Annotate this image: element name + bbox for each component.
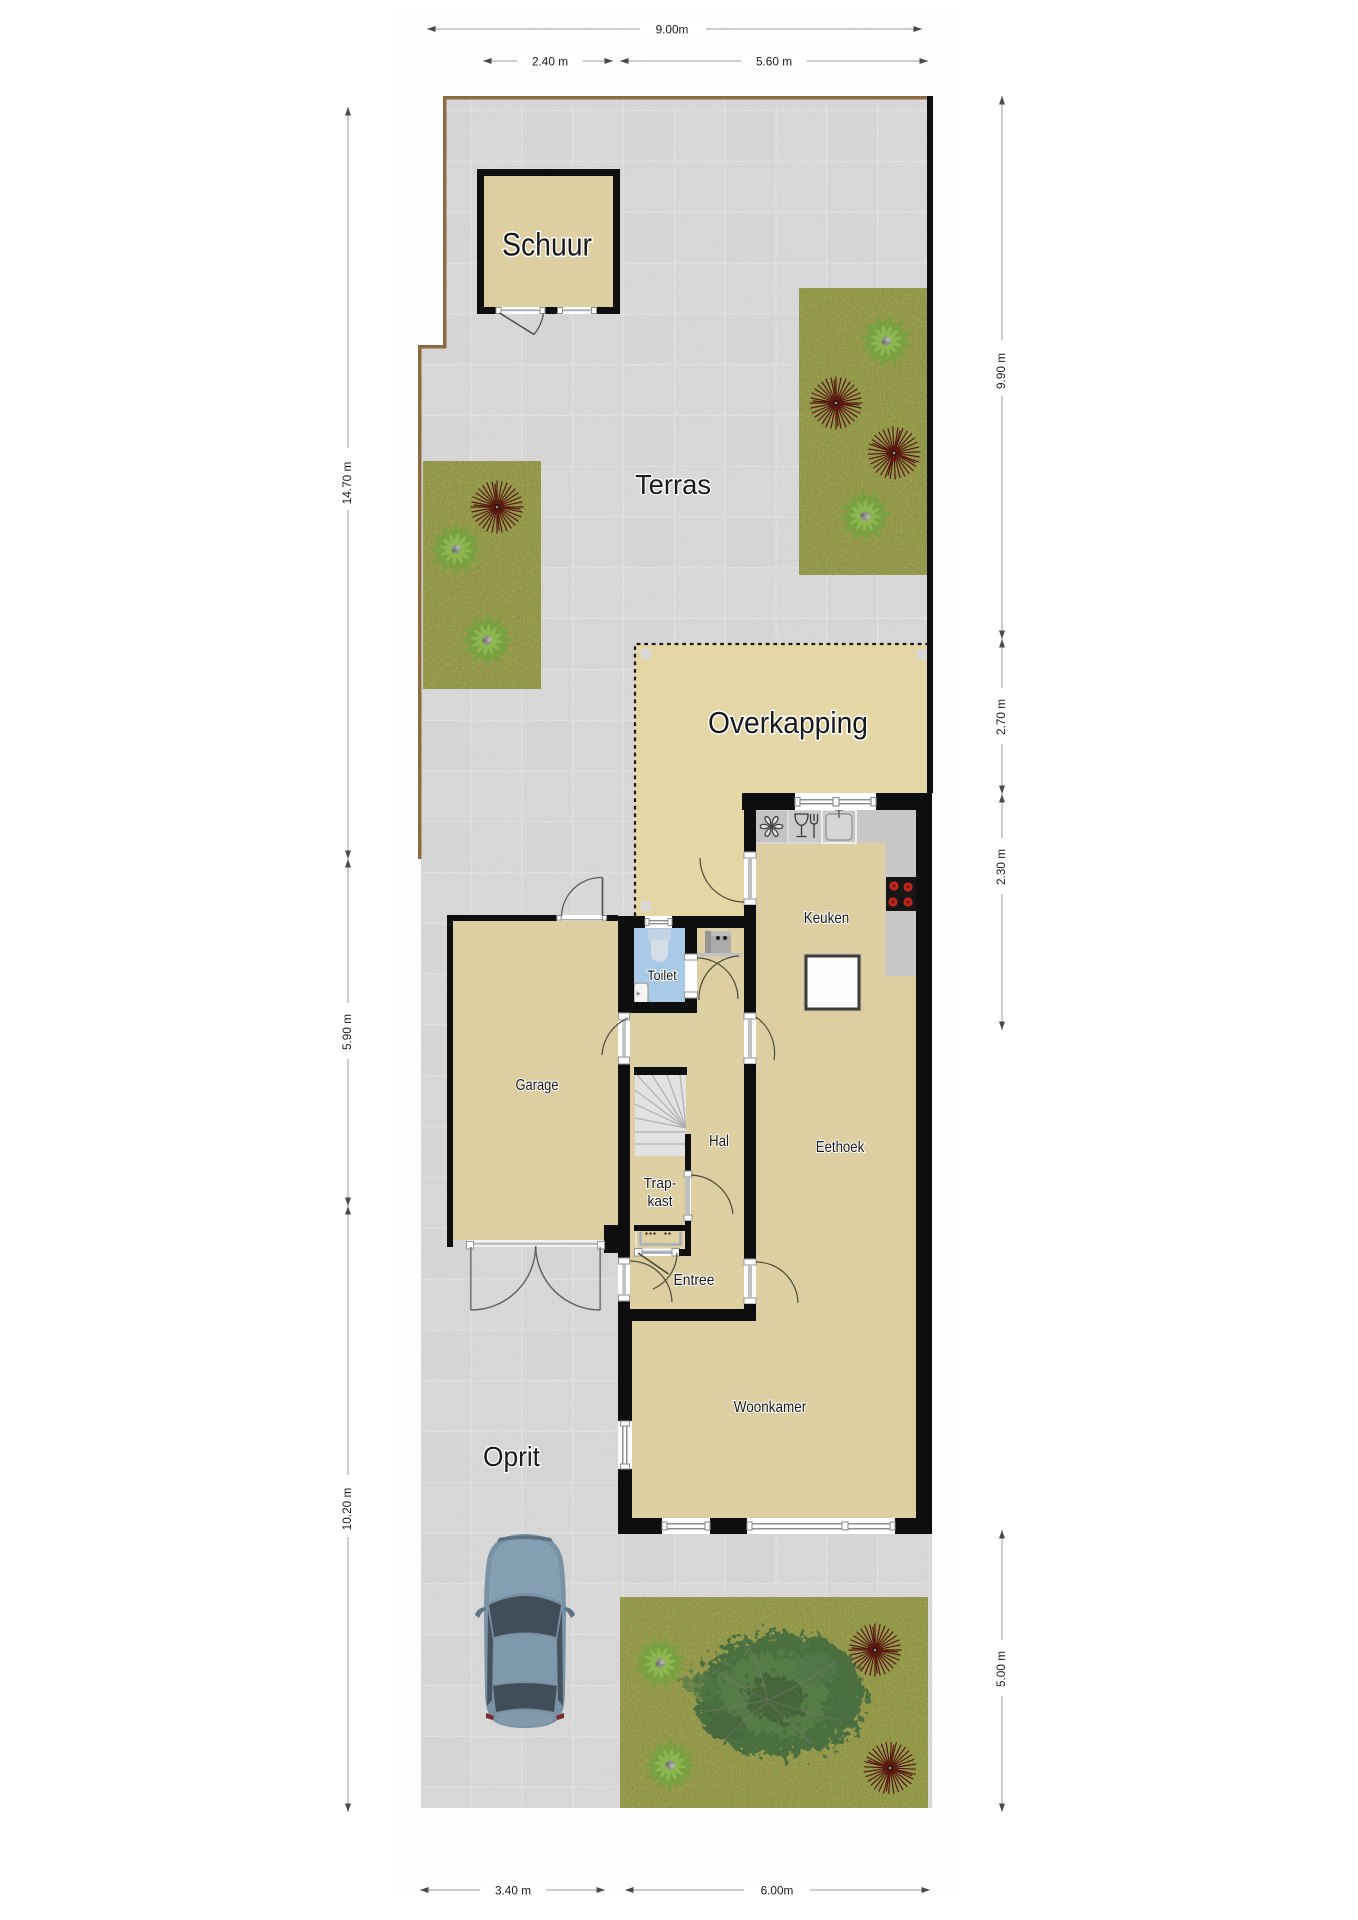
svg-text:5.90 m: 5.90 m — [340, 1014, 354, 1050]
svg-text:9.00m: 9.00m — [656, 23, 689, 37]
svg-text:Eethoek: Eethoek — [816, 1139, 865, 1156]
svg-text:10.20 m: 10.20 m — [340, 1488, 354, 1531]
svg-text:5.00 m: 5.00 m — [994, 1651, 1008, 1687]
svg-text:Overkapping: Overkapping — [708, 705, 868, 740]
svg-text:kast: kast — [648, 1193, 674, 1210]
svg-text:Woonkamer: Woonkamer — [734, 1399, 807, 1416]
svg-text:2.70 m: 2.70 m — [994, 699, 1008, 735]
svg-text:9.90 m: 9.90 m — [994, 353, 1008, 389]
svg-text:5.60 m: 5.60 m — [756, 55, 792, 69]
svg-text:Trap-: Trap- — [644, 1175, 677, 1192]
svg-text:Schuur: Schuur — [502, 227, 592, 263]
svg-text:Hal: Hal — [709, 1133, 729, 1150]
svg-text:2.40 m: 2.40 m — [532, 55, 568, 69]
svg-text:Terras: Terras — [635, 469, 711, 500]
svg-text:Keuken: Keuken — [804, 910, 850, 927]
svg-text:Garage: Garage — [516, 1077, 559, 1094]
svg-text:Toilet: Toilet — [647, 968, 677, 983]
svg-text:14.70 m: 14.70 m — [340, 462, 354, 505]
svg-text:2.30 m: 2.30 m — [994, 849, 1008, 885]
svg-text:Entree: Entree — [674, 1272, 715, 1289]
svg-text:3.40 m: 3.40 m — [495, 1884, 531, 1898]
svg-text:Oprit: Oprit — [483, 1441, 540, 1472]
svg-text:6.00m: 6.00m — [761, 1884, 794, 1898]
